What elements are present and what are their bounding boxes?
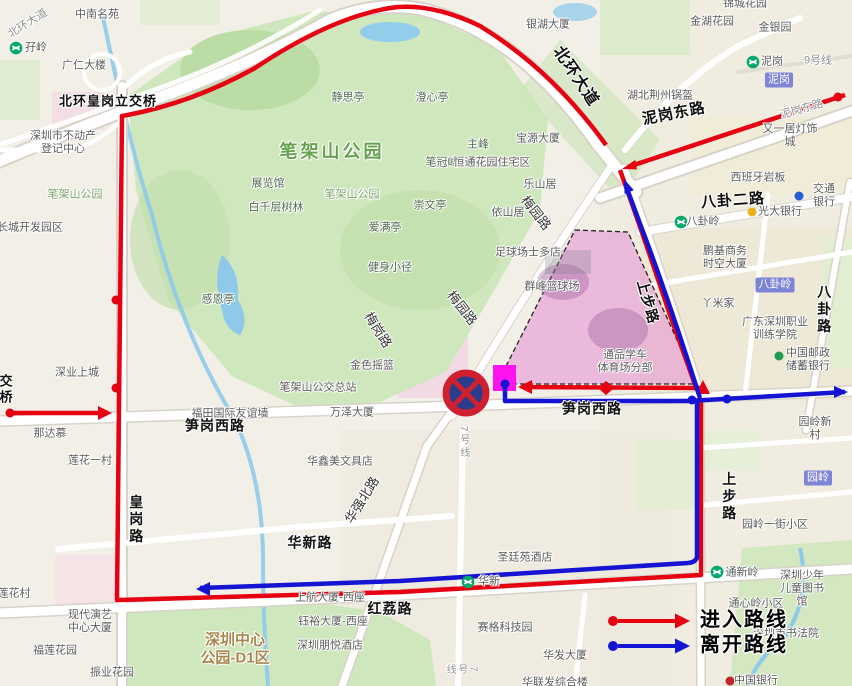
green-strip-se (730, 540, 852, 686)
entry-node-2 (112, 296, 121, 305)
no-stopping-sign-icon (442, 369, 490, 417)
pond-north (360, 22, 420, 42)
green-ne-1 (600, 0, 690, 55)
venue-field (545, 250, 591, 274)
legend-enter-dot (608, 616, 618, 626)
forest-patch-2 (340, 190, 500, 310)
green-strip-top (140, 0, 220, 25)
entry-node-3 (112, 384, 121, 393)
exit-node-2 (723, 395, 732, 404)
green-block-nw (0, 60, 40, 120)
entry-node-1 (6, 409, 15, 418)
legend-leave-dot (608, 641, 618, 651)
exit-node-1 (688, 396, 697, 405)
venue-building-2 (588, 308, 648, 352)
green-block-1 (636, 440, 696, 510)
entry-node-4 (834, 93, 843, 102)
pink-block-sw (55, 555, 125, 605)
pond-ne (553, 3, 597, 21)
map-graphics (0, 0, 852, 686)
map-canvas[interactable]: 中南名苑 孖岭 广仁大楼 北环皇岗立交桥 深圳市不动产 登记中心 长城开发园区 … (0, 0, 852, 686)
exit-node-gate (501, 380, 510, 389)
green-block-3 (700, 430, 760, 470)
